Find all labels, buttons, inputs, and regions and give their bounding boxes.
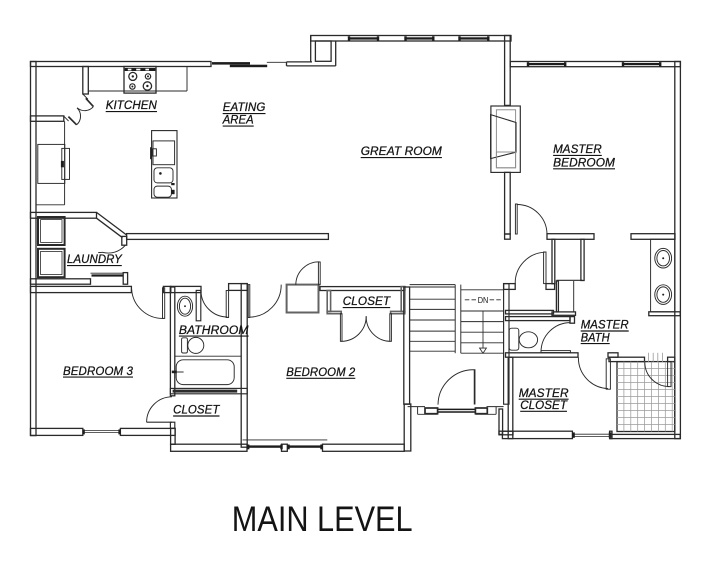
svg-text:MASTER: MASTER xyxy=(581,318,629,332)
svg-text:MASTER: MASTER xyxy=(553,142,602,156)
svg-text:BATH: BATH xyxy=(581,331,610,345)
svg-text:MAIN LEVEL: MAIN LEVEL xyxy=(232,499,413,539)
svg-text:BEDROOM: BEDROOM xyxy=(553,155,615,169)
svg-text:CLOSET: CLOSET xyxy=(520,398,568,412)
svg-text:AREA: AREA xyxy=(222,113,254,127)
svg-text:BEDROOM 2: BEDROOM 2 xyxy=(286,365,355,379)
svg-text:DN: DN xyxy=(478,296,489,305)
svg-text:LAUNDRY: LAUNDRY xyxy=(67,252,123,266)
svg-text:GREAT ROOM: GREAT ROOM xyxy=(361,144,443,158)
svg-text:CLOSET: CLOSET xyxy=(343,294,392,308)
svg-text:BEDROOM 3: BEDROOM 3 xyxy=(63,364,133,378)
svg-text:CLOSET: CLOSET xyxy=(173,403,221,417)
svg-text:BATHROOM: BATHROOM xyxy=(179,323,249,337)
svg-text:KITCHEN: KITCHEN xyxy=(106,98,157,112)
